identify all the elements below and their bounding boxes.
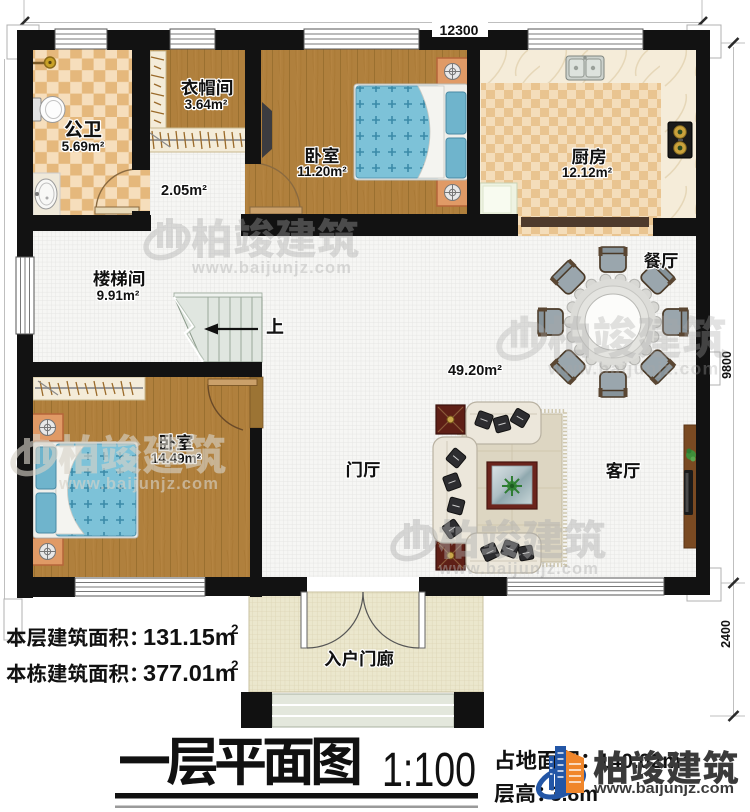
svg-text:2400: 2400 [719, 620, 733, 648]
svg-text:131.15m: 131.15m [143, 624, 236, 650]
svg-text:1:100: 1:100 [382, 743, 476, 797]
svg-text:3.64m²: 3.64m² [185, 97, 228, 112]
svg-text:12.12m²: 12.12m² [562, 165, 613, 180]
svg-text:2: 2 [231, 658, 239, 673]
svg-text:5.69m²: 5.69m² [62, 139, 105, 154]
svg-text:2: 2 [231, 622, 239, 637]
svg-text:11.20m²: 11.20m² [297, 164, 347, 179]
svg-text:www.baijunjz.com: www.baijunjz.com [593, 780, 734, 797]
svg-text:2.05m²: 2.05m² [161, 183, 207, 199]
svg-text:377.01m: 377.01m [143, 660, 236, 686]
svg-text:49.20m²: 49.20m² [448, 363, 502, 379]
svg-text:9.91m²: 9.91m² [97, 288, 140, 303]
svg-text:12300: 12300 [440, 22, 479, 38]
